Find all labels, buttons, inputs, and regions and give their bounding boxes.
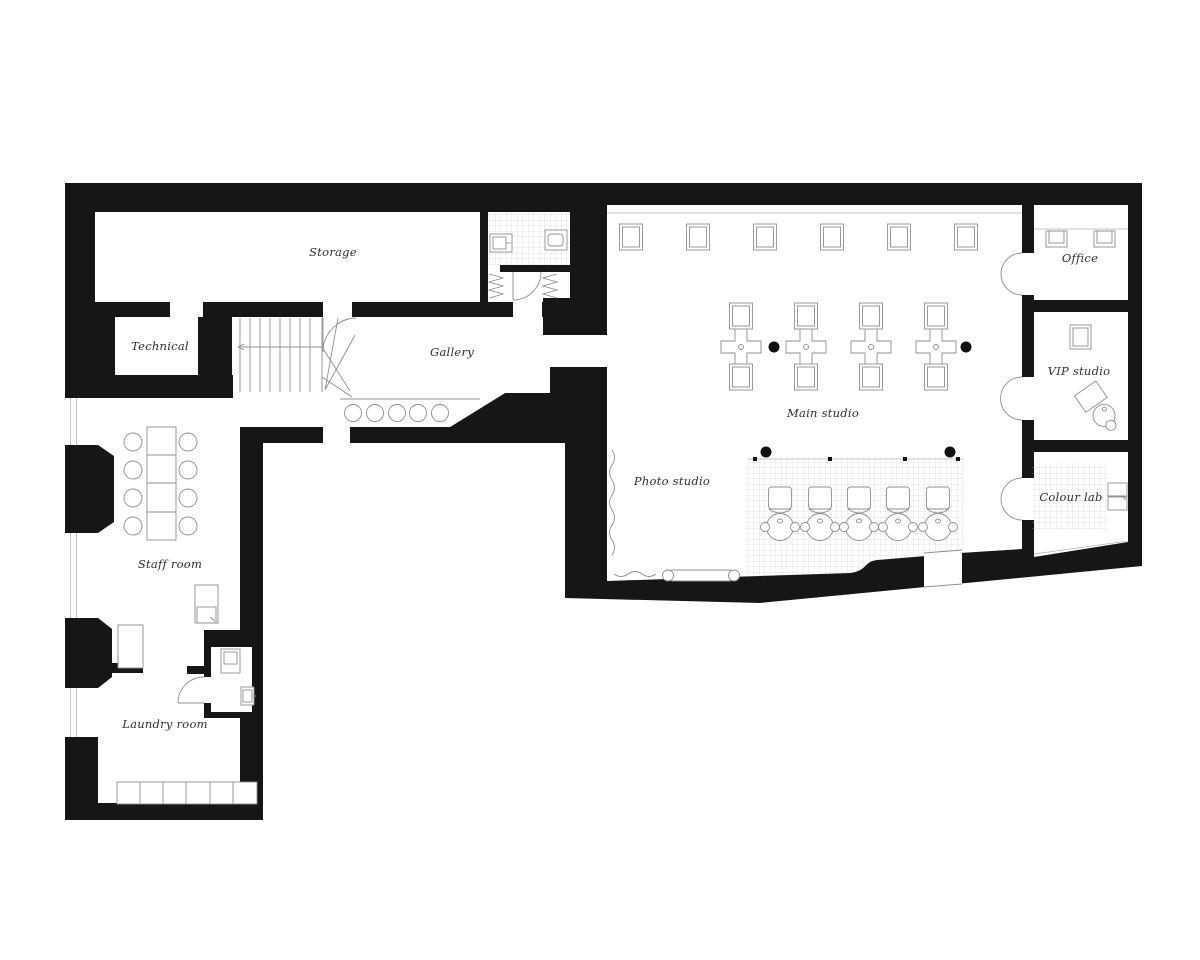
- laundry-room-label: Laundry room: [121, 717, 208, 731]
- window-opening: [63, 398, 98, 445]
- cloakroom-opening: [513, 300, 542, 317]
- office-door-opening: [1020, 253, 1036, 295]
- staff-table: [147, 427, 176, 540]
- storage-floor: [95, 212, 480, 302]
- wc-sink: [241, 687, 256, 705]
- storage-label: Storage: [309, 245, 357, 259]
- photo-studio-label: Photo studio: [633, 474, 710, 488]
- window-opening: [63, 533, 98, 618]
- wall-pier: [98, 618, 112, 688]
- wc-toilet: [221, 649, 240, 673]
- floor-plan-drawing: Storage Technical Gallery Staff room Lau…: [0, 0, 1200, 960]
- technical-label: Technical: [131, 339, 189, 353]
- colour-lab-label: Colour lab: [1039, 490, 1102, 504]
- floor-plan-page: Storage Technical Gallery Staff room Lau…: [0, 0, 1200, 960]
- storage-technical-opening: [170, 302, 203, 317]
- window-opening: [63, 688, 98, 737]
- storage-stair-door-opening: [323, 302, 352, 317]
- washing-machines: [117, 782, 257, 804]
- vip-door-opening: [1020, 377, 1036, 420]
- backdrop-roll: [663, 570, 740, 581]
- vip-station: [1070, 325, 1091, 349]
- corridor-window-opening: [323, 427, 350, 443]
- staff-room-label: Staff room: [138, 557, 202, 571]
- gallery-label: Gallery: [430, 345, 474, 359]
- main-studio-label: Main studio: [786, 406, 859, 420]
- bathroom-sink: [490, 234, 512, 252]
- wc-door-opening: [204, 677, 212, 703]
- toilet: [545, 230, 567, 250]
- vip-studio-label: VIP studio: [1048, 364, 1111, 378]
- bathroom-partition: [500, 265, 570, 272]
- cloakroom-corner-wall: [543, 298, 607, 335]
- office-label: Office: [1062, 251, 1098, 265]
- wall-pier: [98, 445, 114, 533]
